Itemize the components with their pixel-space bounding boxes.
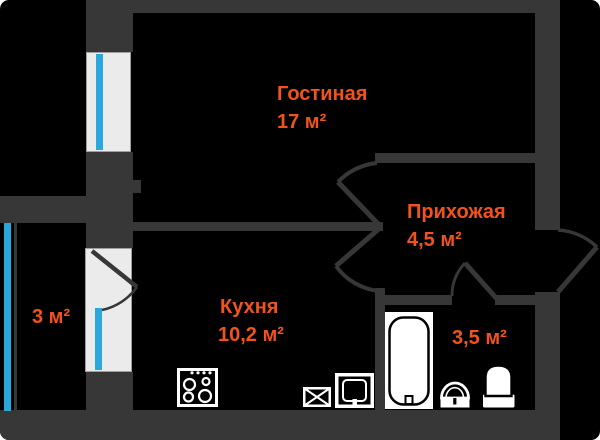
bathroom-label: 3,5 м²	[452, 324, 507, 352]
room-name: Прихожая	[407, 198, 506, 226]
room-area: 3,5 м²	[452, 324, 507, 352]
hallway-doors-icon	[336, 163, 381, 291]
kitchen-label: Кухня 10,2 м²	[218, 293, 284, 349]
balcony-label: 3 м²	[32, 303, 70, 331]
room-area: 4,5 м²	[407, 226, 506, 254]
extractor-vent-icon	[304, 388, 330, 406]
entrance-door-icon	[558, 230, 597, 292]
floorplan: Гостиная 17 м² Прихожая 4,5 м² Кухня 10,…	[0, 0, 600, 440]
kitchen-sink-icon	[337, 375, 373, 407]
room-name: Кухня	[220, 293, 284, 321]
room-area: 17 м²	[277, 108, 367, 136]
washbasin-icon	[441, 383, 470, 408]
room-name: Гостиная	[277, 80, 367, 108]
stove-icon	[179, 370, 217, 406]
hallway-label: Прихожая 4,5 м²	[407, 198, 506, 254]
toilet-icon	[483, 366, 515, 408]
doors-and-fixtures-layer	[0, 0, 600, 440]
bathtub-icon	[385, 312, 433, 409]
bathroom-door-icon	[452, 263, 497, 299]
room-area: 10,2 м²	[218, 321, 284, 349]
room-area: 3 м²	[32, 303, 70, 331]
living-room-label: Гостиная 17 м²	[277, 80, 367, 136]
balcony-door-icon	[92, 251, 137, 310]
